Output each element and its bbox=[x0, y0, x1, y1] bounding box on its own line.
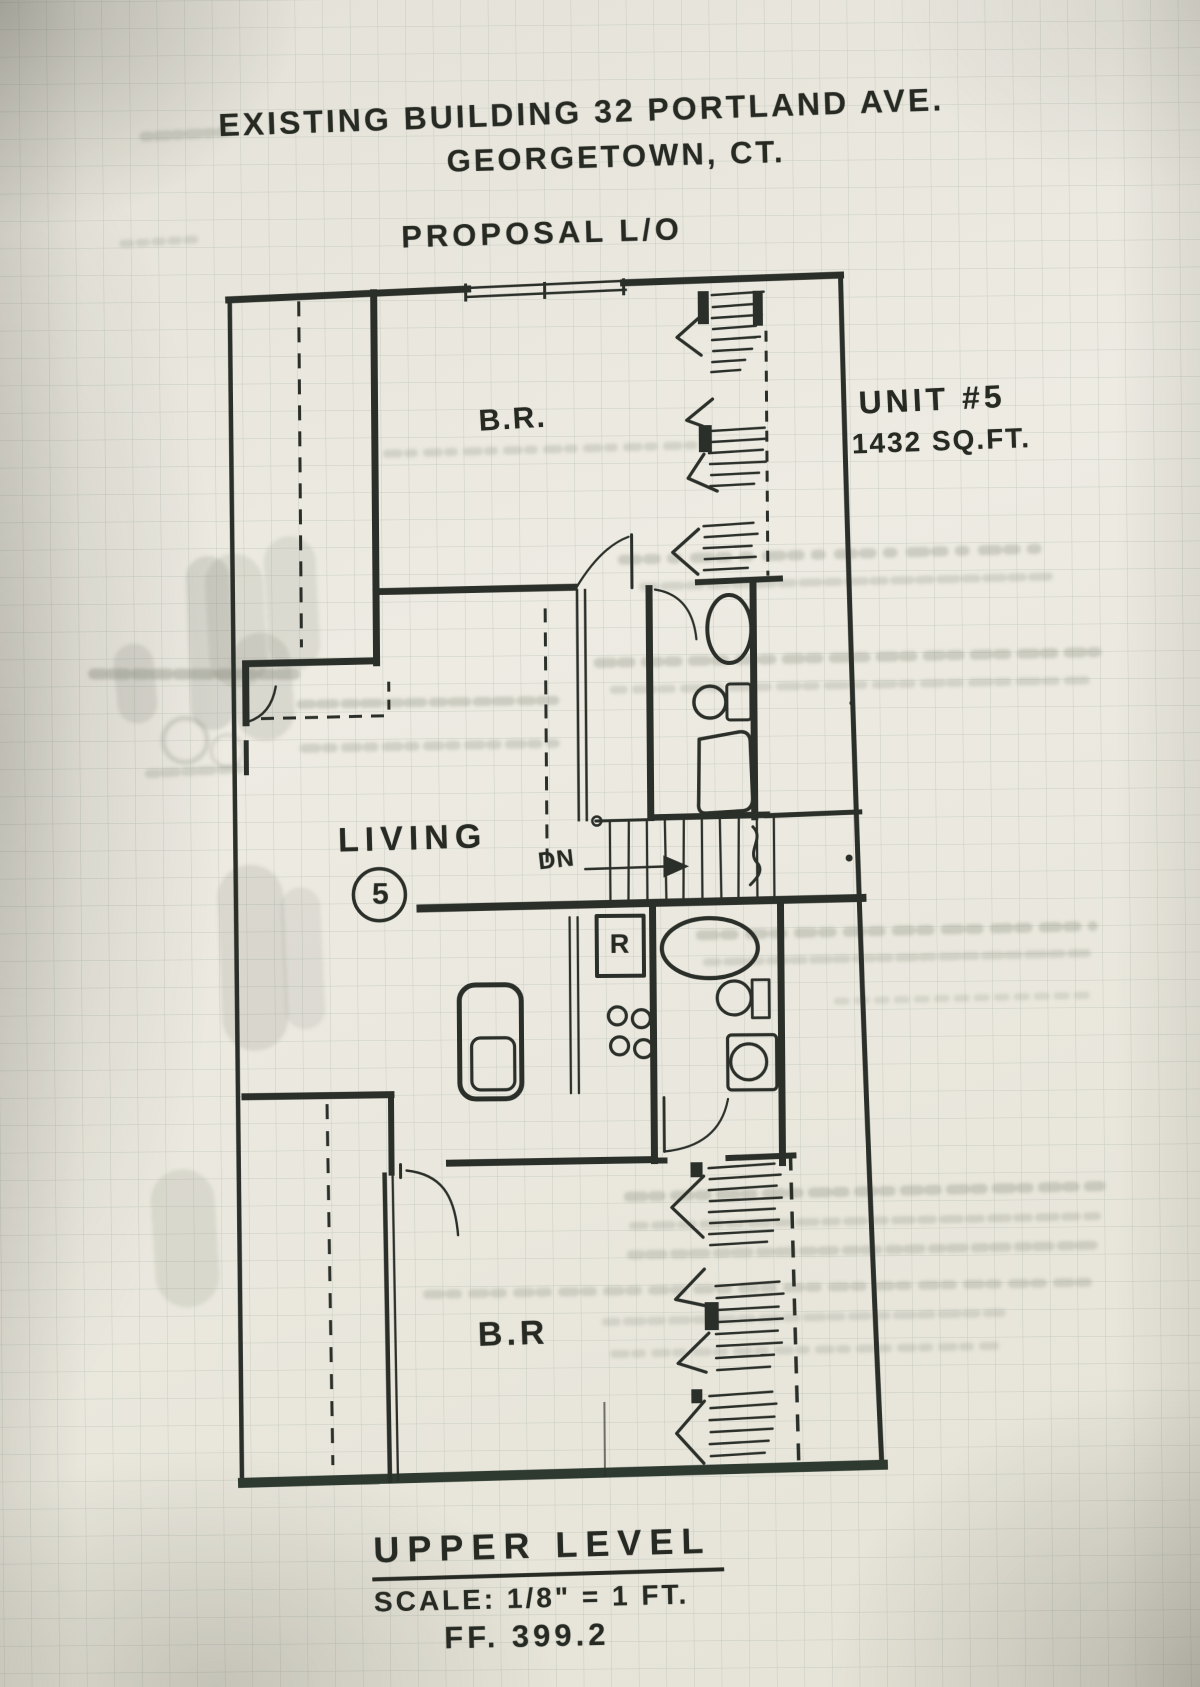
plan-elevation: FF. 399.2 bbox=[444, 1617, 610, 1657]
exterior-walls bbox=[229, 275, 883, 1483]
room-label-living: LIVING bbox=[337, 817, 487, 860]
interior-walls bbox=[239, 289, 867, 1482]
island-sink-symbol bbox=[472, 1038, 515, 1090]
bathroom-lower-fixtures bbox=[662, 918, 777, 1091]
bathroom-upper-fixtures bbox=[693, 595, 753, 813]
unit-number-label: UNIT #5 bbox=[858, 378, 1007, 422]
room-label-bedroom-upper: B.R. bbox=[478, 401, 548, 439]
floor-plan-photo: EXISTING BUILDING 32 PORTLAND AVE. GEORG… bbox=[0, 0, 1200, 1687]
room-label-bedroom-lower: B.R bbox=[477, 1314, 549, 1355]
stairs bbox=[585, 815, 775, 903]
stairs-dn-label: DN bbox=[537, 844, 577, 876]
bathtub-symbol bbox=[707, 595, 752, 663]
photocopy-ghost-marks bbox=[89, 125, 1102, 1358]
living-unit-number: 5 bbox=[367, 878, 393, 912]
floor-plan-drawing bbox=[0, 0, 1200, 1687]
unit-area-label: 1432 SQ.FT. bbox=[851, 422, 1031, 460]
sink-symbol bbox=[717, 981, 751, 1015]
refrigerator-label: R bbox=[610, 929, 630, 960]
misc-marks bbox=[352, 700, 856, 920]
stove-burners-symbol bbox=[608, 1007, 652, 1058]
shower-symbol bbox=[698, 732, 753, 814]
plan-title: UPPER LEVEL bbox=[371, 1519, 724, 1581]
bathtub-symbol bbox=[662, 918, 758, 979]
graph-paper-sheet: EXISTING BUILDING 32 PORTLAND AVE. GEORG… bbox=[0, 0, 1200, 1687]
